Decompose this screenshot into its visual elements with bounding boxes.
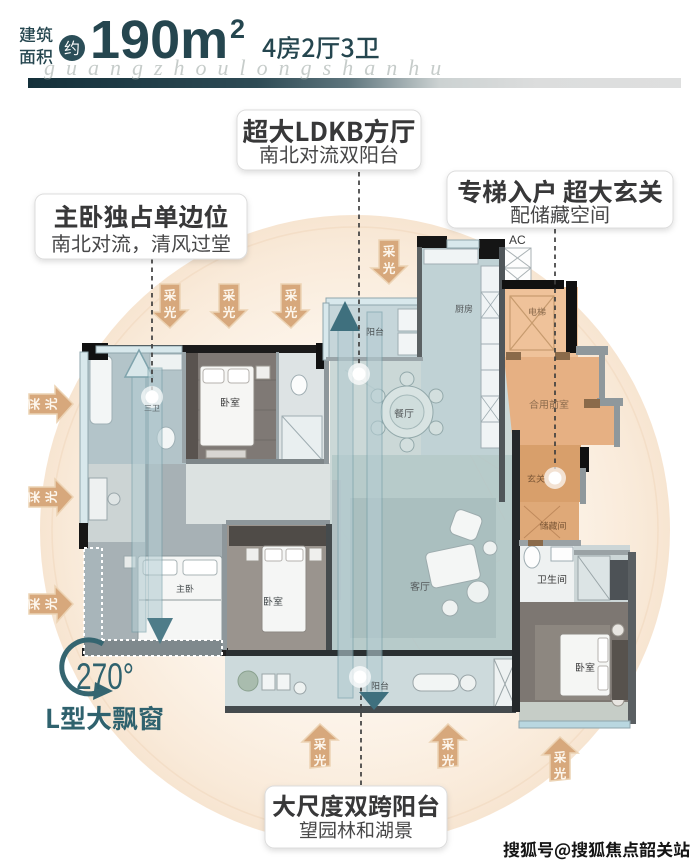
svg-text:190m: 190m <box>90 10 228 70</box>
svg-text:AC: AC <box>509 233 526 247</box>
svg-text:270°: 270° <box>76 656 134 697</box>
svg-text:2: 2 <box>230 14 245 44</box>
